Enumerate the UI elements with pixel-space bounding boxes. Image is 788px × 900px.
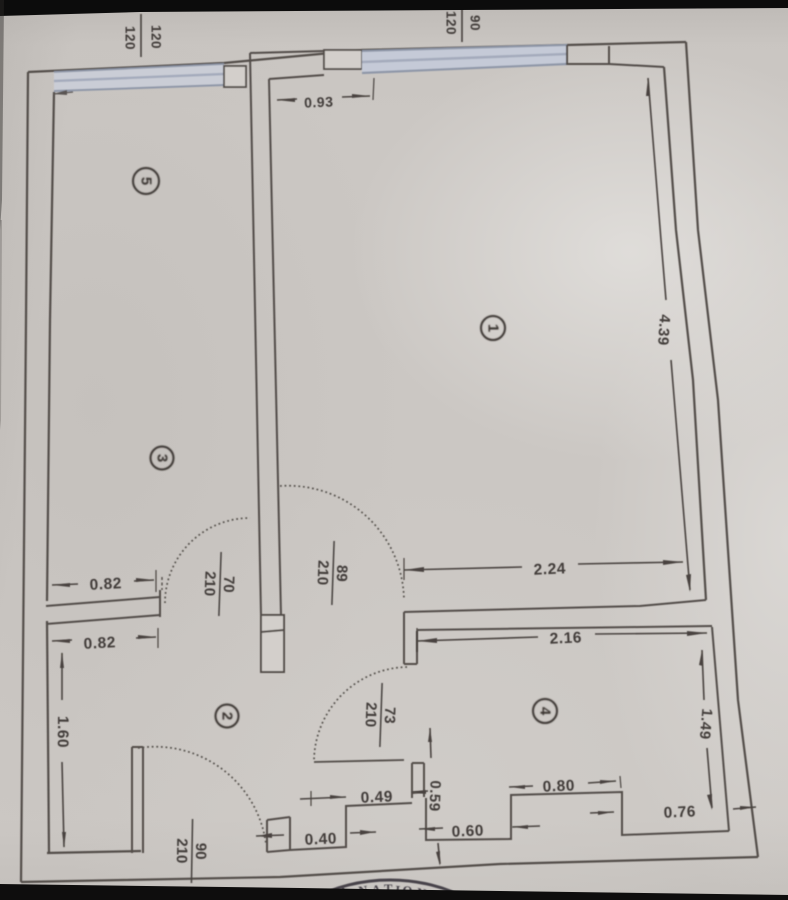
svg-text:0.82: 0.82 xyxy=(83,634,116,653)
svg-text:2: 2 xyxy=(219,712,236,720)
svg-text:73: 73 xyxy=(381,707,399,724)
svg-text:120: 120 xyxy=(443,11,458,35)
svg-text:89: 89 xyxy=(333,565,351,582)
svg-text:0.59: 0.59 xyxy=(425,780,443,812)
svg-text:3: 3 xyxy=(154,454,171,462)
svg-text:4.39: 4.39 xyxy=(654,314,673,346)
svg-text:0.93: 0.93 xyxy=(304,93,334,110)
svg-text:0.80: 0.80 xyxy=(542,777,575,795)
svg-text:90: 90 xyxy=(192,843,209,860)
svg-text:210: 210 xyxy=(201,571,219,597)
svg-text:210: 210 xyxy=(362,702,380,728)
svg-text:1.49: 1.49 xyxy=(696,708,716,741)
svg-text:210: 210 xyxy=(314,560,332,586)
svg-text:210: 210 xyxy=(173,838,190,863)
svg-text:2.16: 2.16 xyxy=(549,629,582,647)
svg-text:120: 120 xyxy=(122,26,137,50)
svg-text:0.82: 0.82 xyxy=(89,575,122,594)
svg-text:5: 5 xyxy=(138,177,155,185)
svg-text:0.49: 0.49 xyxy=(360,788,393,806)
svg-text:0.76: 0.76 xyxy=(663,803,696,821)
svg-text:70: 70 xyxy=(220,576,238,593)
svg-text:2.24: 2.24 xyxy=(533,560,566,578)
svg-text:0.60: 0.60 xyxy=(451,822,484,840)
svg-text:1.60: 1.60 xyxy=(54,716,71,748)
svg-text:4: 4 xyxy=(537,707,554,716)
svg-text:120: 120 xyxy=(148,25,163,49)
svg-text:1: 1 xyxy=(485,324,502,332)
svg-text:0.40: 0.40 xyxy=(304,830,337,848)
svg-text:90: 90 xyxy=(467,15,482,31)
